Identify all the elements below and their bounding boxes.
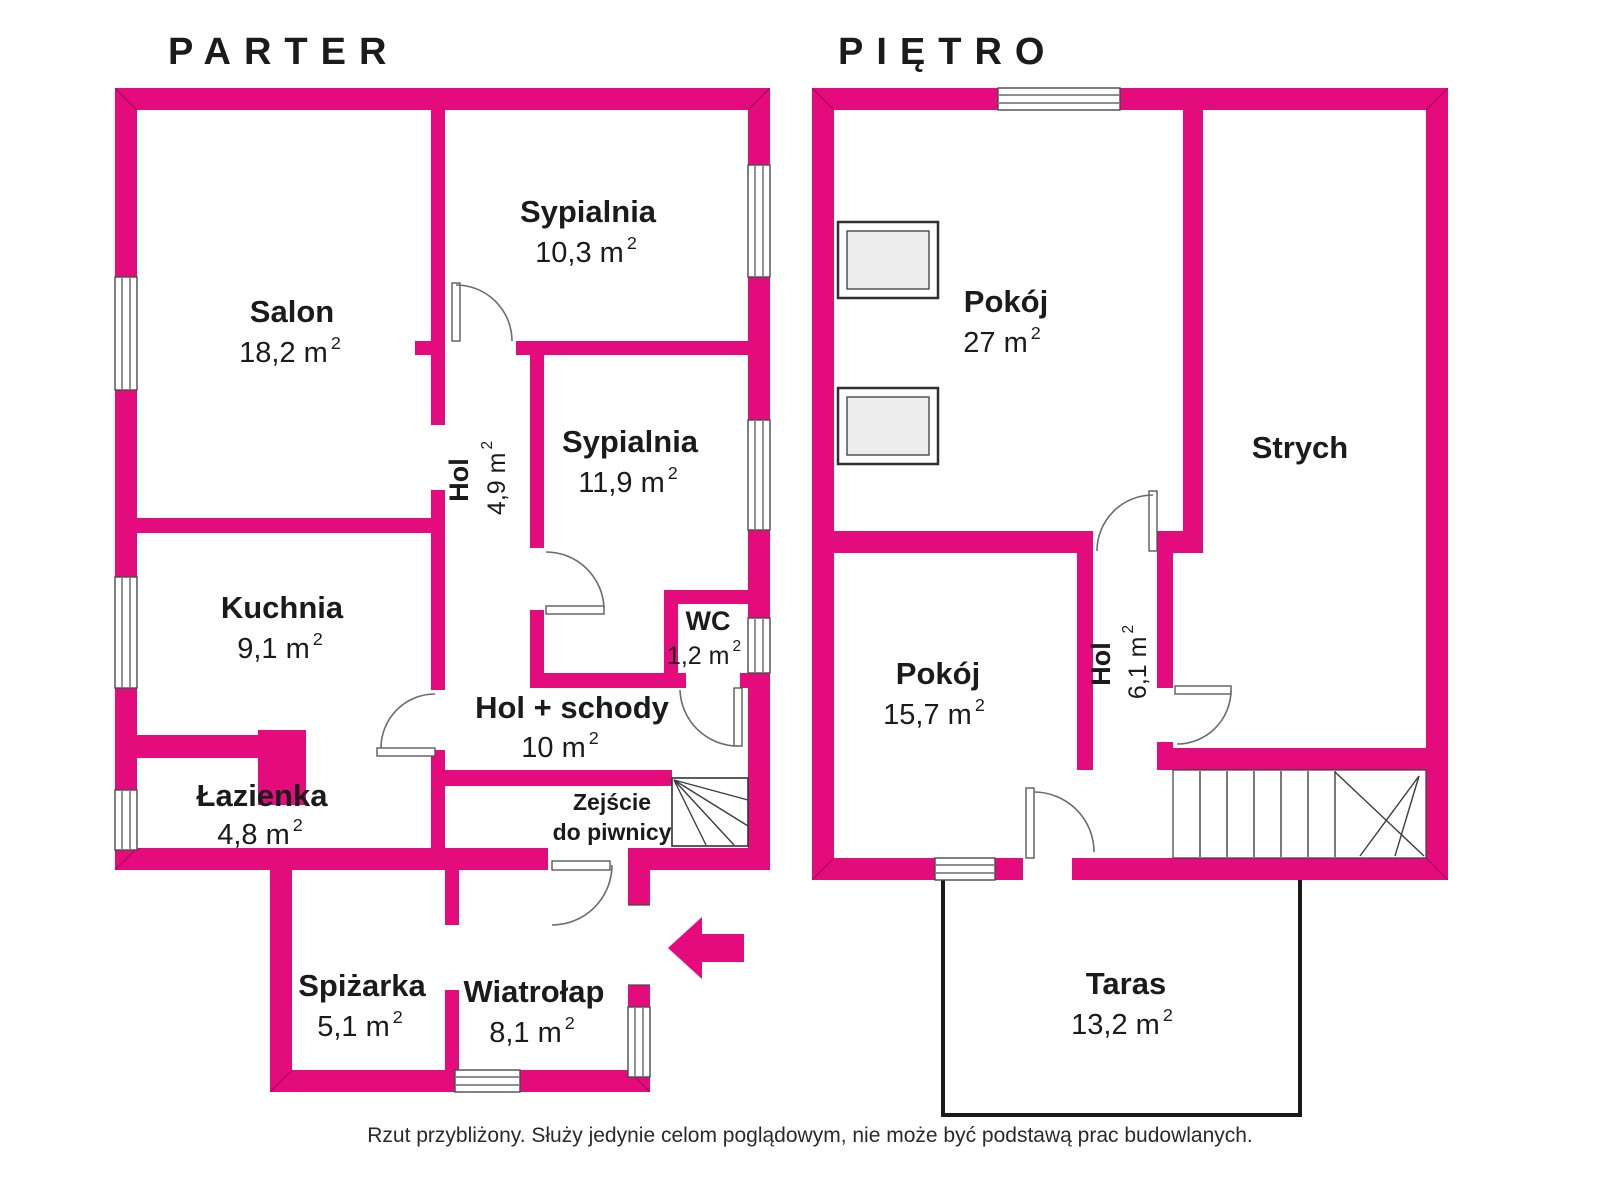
- taras-door-opening: [1023, 858, 1072, 880]
- wall-segment: [431, 750, 445, 848]
- window: [935, 858, 995, 880]
- wall-segment: [530, 355, 544, 548]
- wall-segment: [445, 770, 672, 786]
- door-strych: [1175, 686, 1231, 744]
- room-area-spizarka: 5,1 m2: [317, 1007, 403, 1043]
- wall-segment: [1157, 748, 1448, 770]
- door-wiatrolap-hol: [552, 861, 612, 925]
- room-label-strych: Strych: [1252, 430, 1348, 465]
- wall-segment: [445, 870, 459, 925]
- room-label-lazienka: Łazienka: [197, 778, 329, 813]
- door-kuchnia: [377, 694, 435, 756]
- wall-segment: [664, 673, 686, 688]
- wall-segment: [431, 533, 445, 690]
- parter-walls: [115, 88, 770, 1092]
- room-label-pokoj-2: Pokój: [896, 656, 980, 691]
- room-label-hol-pietro: Hol: [1086, 642, 1116, 686]
- room-label-wiatrolap: Wiatrołap: [464, 974, 605, 1009]
- attic-stairs: [1173, 770, 1426, 858]
- title-pietro: PIĘTRO: [838, 31, 1057, 73]
- wall-segment: [1157, 553, 1173, 688]
- door-sypialnia-2: [546, 552, 604, 614]
- room-label-sypialnia-1: Sypialnia: [520, 194, 657, 229]
- wall-segment: [995, 858, 1023, 880]
- room-area-wiatrolap: 8,1 m2: [489, 1013, 575, 1049]
- wall-segment: [834, 531, 1093, 553]
- basement-stairs: [672, 778, 748, 846]
- window: [115, 577, 137, 688]
- wall-segment: [445, 990, 459, 1070]
- title-parter: PARTER: [168, 31, 399, 73]
- room-label-spizarka: Spiżarka: [298, 968, 426, 1003]
- room-label-hol: Hol: [444, 458, 474, 502]
- door-wc: [680, 688, 742, 746]
- floorplan-drawing: Salon 18,2 m2 Sypialnia 10,3 m2 Hol 4,9 …: [0, 0, 1600, 1200]
- entrance-arrow: [668, 917, 744, 979]
- door-sypialnia-1: [452, 283, 512, 341]
- wall-segment: [740, 673, 748, 688]
- door-pokoj-1: [1097, 491, 1157, 551]
- room-label-wc: WC: [686, 606, 731, 636]
- room-label-salon: Salon: [250, 294, 334, 329]
- window: [748, 420, 770, 530]
- wall-segment: [115, 88, 137, 870]
- door-taras: [1026, 788, 1094, 858]
- room-area-hol: 4,9 m2: [479, 441, 511, 515]
- wall-segment: [431, 110, 445, 355]
- room-area-wc: 1,2 m2: [667, 638, 741, 670]
- room-area-lazienka: 4,8 m2: [217, 815, 303, 851]
- window: [748, 618, 770, 673]
- wall-segment: [431, 355, 445, 425]
- wall-segment: [431, 490, 445, 518]
- window: [628, 1007, 650, 1077]
- room-label-sypialnia-2: Sypialnia: [562, 424, 699, 459]
- floorplan-page: Salon 18,2 m2 Sypialnia 10,3 m2 Hol 4,9 …: [0, 0, 1600, 1200]
- room-area-taras: 13,2 m2: [1071, 1005, 1173, 1041]
- room-area-hol-pietro: 6,1 m2: [1120, 625, 1152, 699]
- wall-segment: [137, 518, 445, 533]
- wall-segment: [270, 870, 292, 1092]
- window: [748, 165, 770, 277]
- window: [115, 277, 137, 390]
- floor-pietro: Pokój 27 m2 Strych Pokój 15,7 m2 Hol 6,1…: [812, 88, 1448, 1115]
- room-label-taras: Taras: [1086, 966, 1166, 1001]
- wall-segment: [1157, 531, 1203, 553]
- room-area-salon: 18,2 m2: [239, 333, 341, 369]
- floor-parter: Salon 18,2 m2 Sypialnia 10,3 m2 Hol 4,9 …: [115, 88, 770, 1092]
- wall-segment: [530, 610, 544, 673]
- wall-segment: [516, 341, 748, 355]
- room-label-hol-schody: Hol + schody: [475, 690, 670, 725]
- wall-segment: [812, 88, 834, 880]
- room-area-pokoj-2: 15,7 m2: [883, 695, 985, 731]
- wall-segment: [415, 341, 445, 355]
- entrance-opening: [628, 905, 650, 985]
- skylight-windows: [838, 222, 938, 464]
- wall-segment: [1072, 858, 1448, 880]
- room-label-pokoj-1: Pokój: [964, 284, 1048, 319]
- wall-segment: [115, 88, 770, 110]
- room-area-kuchnia: 9,1 m2: [237, 629, 323, 665]
- label-zejscie-line2: do piwnicy: [553, 819, 672, 845]
- skylight: [838, 388, 938, 464]
- wall-segment: [115, 848, 548, 870]
- room-area-sypialnia-2: 11,9 m2: [578, 463, 678, 499]
- window: [115, 790, 137, 850]
- label-zejscie-line1: Zejście: [573, 789, 651, 815]
- window: [998, 88, 1120, 110]
- room-area-sypialnia-1: 10,3 m2: [535, 233, 637, 269]
- room-area-pokoj-1: 27 m2: [963, 323, 1040, 359]
- pietro-walls: [812, 88, 1448, 880]
- room-area-hol-schody: 10 m2: [521, 728, 598, 764]
- wall-segment: [812, 88, 1448, 110]
- disclaimer-note: Rzut przybliżony. Służy jedynie celom po…: [367, 1124, 1253, 1147]
- window: [455, 1070, 520, 1092]
- wall-segment: [530, 673, 664, 688]
- wall-segment: [628, 848, 770, 870]
- room-label-kuchnia: Kuchnia: [221, 590, 344, 625]
- wall-segment: [1183, 110, 1203, 553]
- wall-segment: [137, 735, 265, 758]
- skylight: [838, 222, 938, 298]
